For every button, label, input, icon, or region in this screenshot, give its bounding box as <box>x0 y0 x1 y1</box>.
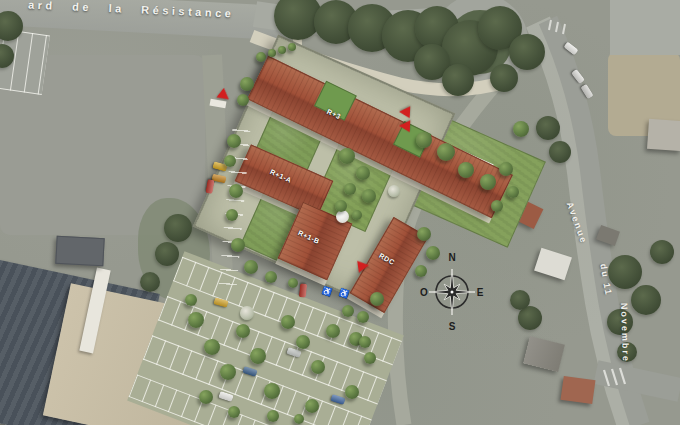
gazebo-circle <box>336 210 349 223</box>
tree <box>305 399 319 413</box>
tree <box>229 184 243 198</box>
tree <box>356 166 370 180</box>
tree <box>267 410 279 422</box>
street-label-avenue-word-3: Novembre <box>619 303 631 363</box>
tree <box>204 339 220 355</box>
tree <box>288 43 296 51</box>
tree <box>220 364 236 380</box>
tree <box>344 183 356 195</box>
compass-label-east: E <box>477 287 484 298</box>
compass-label-west: O <box>420 287 428 298</box>
tree <box>416 132 432 148</box>
tree <box>268 49 276 57</box>
tree <box>240 77 254 91</box>
gray-outbuilding <box>55 236 104 266</box>
aerial-tree <box>631 285 661 315</box>
entrance-arrow-icon <box>399 120 411 133</box>
aerial-tree <box>164 214 192 242</box>
tree <box>342 305 354 317</box>
aerial-site-plan-map: ♿ ♿ ard de la Résistance Avenue du 11 No… <box>0 0 680 425</box>
tree <box>250 348 266 364</box>
tree <box>294 414 304 424</box>
tree <box>335 200 347 212</box>
entrance-arrow-icon <box>399 106 411 119</box>
tree <box>244 260 258 274</box>
tree <box>345 385 359 399</box>
avenue-road <box>548 20 640 425</box>
tree <box>278 46 286 54</box>
tree <box>491 200 503 212</box>
tree <box>264 383 280 399</box>
tree <box>339 148 355 164</box>
tree <box>236 324 250 338</box>
aerial-tree <box>442 64 474 96</box>
tree <box>228 406 240 418</box>
aerial-tree <box>650 240 674 264</box>
tree <box>199 390 213 404</box>
tree <box>185 294 197 306</box>
tree <box>458 162 474 178</box>
tree <box>370 292 384 306</box>
aerial-tree <box>510 290 530 310</box>
aerial-tree <box>536 116 560 140</box>
aerial-tree <box>549 141 571 163</box>
compass-label-north: N <box>448 252 455 263</box>
tree <box>188 312 204 328</box>
aerial-tree <box>509 34 545 70</box>
blossom-tree <box>388 185 400 197</box>
tree <box>326 324 340 338</box>
compass-label-south: S <box>449 321 456 332</box>
tree <box>417 227 431 241</box>
tree <box>311 360 325 374</box>
compass-center-dot <box>451 291 454 294</box>
tree <box>352 210 362 220</box>
house-far-east <box>647 119 680 151</box>
tree <box>359 336 371 348</box>
aerial-tree <box>490 64 518 92</box>
tree <box>357 311 369 323</box>
tree <box>362 189 376 203</box>
tree <box>231 238 245 252</box>
tree <box>224 155 236 167</box>
tree <box>499 162 513 176</box>
tree <box>227 134 241 148</box>
tree <box>265 271 277 283</box>
blossom-tree <box>240 306 254 320</box>
compass-rose: N E S O <box>418 244 486 340</box>
tree <box>364 352 376 364</box>
tree <box>296 335 310 349</box>
tree <box>507 186 519 198</box>
house-southeast-2-red <box>560 376 595 404</box>
tree <box>513 121 529 137</box>
tree <box>256 52 266 62</box>
car <box>299 283 307 298</box>
tree <box>480 174 496 190</box>
tree <box>237 94 249 106</box>
aerial-tree <box>608 255 642 289</box>
tree <box>437 143 455 161</box>
aerial-tree <box>155 242 179 266</box>
entrance-arrow-icon <box>357 259 370 272</box>
tree <box>281 315 295 329</box>
aerial-tree <box>140 272 160 292</box>
tree <box>288 278 298 288</box>
tree <box>226 209 238 221</box>
